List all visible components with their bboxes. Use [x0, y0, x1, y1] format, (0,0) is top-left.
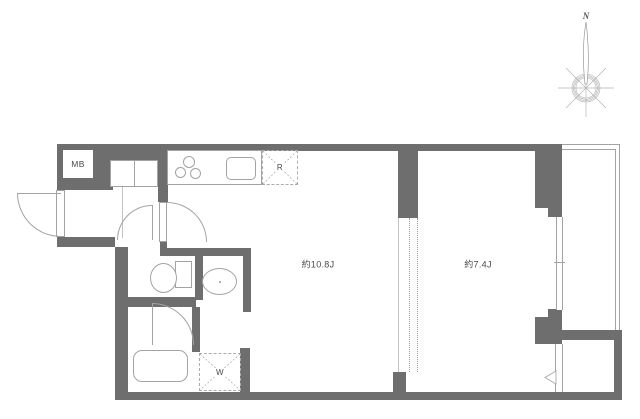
kitchen-door-leaf — [159, 202, 167, 242]
wall — [240, 348, 250, 392]
balcony-outline — [562, 149, 615, 150]
refrigerator-space: R — [262, 150, 298, 185]
kitchen-door-arc — [167, 202, 207, 242]
partition-sliding-door — [417, 218, 418, 372]
window — [556, 217, 563, 310]
toilet-bowl — [150, 263, 177, 293]
wall — [548, 309, 562, 317]
balcony-outline — [619, 144, 620, 332]
stove-burner-icon — [175, 167, 186, 178]
wall — [558, 330, 622, 340]
shoe-cabinet-divider — [134, 160, 135, 187]
kitchen-sink — [226, 157, 256, 180]
wall — [393, 372, 406, 392]
window-center-tick — [554, 262, 565, 263]
washbasin-drain — [219, 281, 221, 283]
hall-door-leaf — [152, 205, 153, 240]
bathtub — [133, 350, 188, 382]
wall — [614, 340, 622, 400]
wall — [192, 307, 200, 352]
room-label-ldk: 約10.8J — [302, 258, 335, 271]
partition-sliding-door — [409, 218, 410, 372]
washer-space: W — [199, 353, 241, 391]
north-label: N — [582, 11, 590, 21]
window-swing-icon — [544, 370, 557, 385]
toilet-tank — [175, 261, 192, 288]
stove-burner-icon — [190, 168, 201, 179]
wall — [167, 248, 251, 256]
wall — [398, 150, 418, 218]
compass-icon: N — [545, 8, 630, 120]
meter-box: MB — [63, 150, 93, 178]
wall — [115, 247, 128, 400]
balcony-outline — [615, 149, 616, 332]
refrigerator-label: R — [276, 163, 284, 172]
washer-label: W — [215, 368, 225, 377]
entrance-door-arc — [17, 193, 61, 237]
wall — [57, 237, 115, 247]
north-needle-icon — [583, 22, 588, 84]
meter-box-label: MB — [71, 159, 85, 169]
wall — [243, 256, 251, 312]
wall — [160, 240, 167, 256]
balcony-outline — [562, 144, 620, 145]
wall — [548, 208, 562, 217]
room-label-bedroom: 約7.4J — [464, 258, 492, 271]
partition-sliding-door — [398, 218, 399, 372]
wall — [115, 392, 622, 400]
wall — [535, 150, 562, 208]
floor-plan: MB R W — [0, 0, 640, 419]
bathroom-door-arc — [152, 303, 194, 345]
stove-burner-icon — [183, 156, 195, 168]
